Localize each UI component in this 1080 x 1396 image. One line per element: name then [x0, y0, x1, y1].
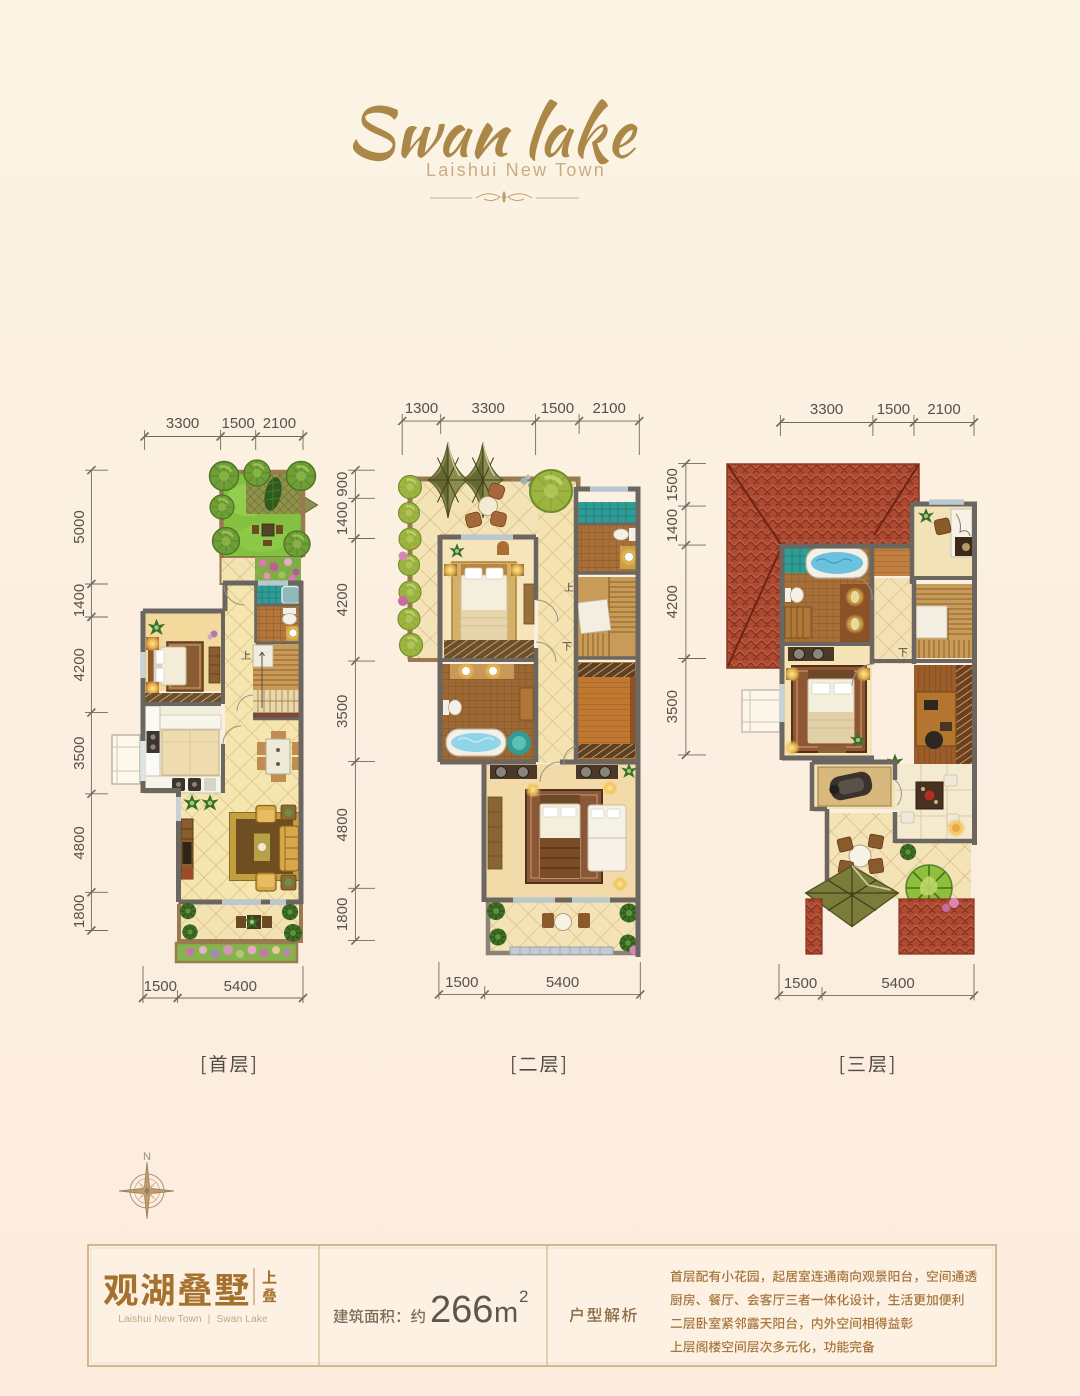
svg-text:4200: 4200	[71, 648, 88, 681]
svg-text:5400: 5400	[881, 975, 914, 992]
svg-text:1500: 1500	[541, 400, 574, 417]
svg-text:m: m	[494, 1297, 518, 1329]
svg-text:2: 2	[519, 1287, 528, 1306]
svg-text:4800: 4800	[334, 808, 351, 841]
svg-text:1500: 1500	[877, 401, 910, 418]
svg-text:1400: 1400	[71, 584, 88, 617]
svg-text:2100: 2100	[593, 400, 626, 417]
svg-text:5400: 5400	[546, 974, 579, 991]
svg-text:N: N	[143, 1151, 151, 1163]
svg-text:5000: 5000	[71, 510, 88, 543]
svg-text:1400: 1400	[664, 509, 681, 542]
svg-text:5400: 5400	[224, 978, 257, 995]
svg-text:2100: 2100	[263, 415, 296, 432]
svg-text:900: 900	[334, 472, 351, 497]
svg-text:1500: 1500	[144, 978, 177, 995]
svg-text:1800: 1800	[71, 895, 88, 928]
svg-text:2100: 2100	[927, 401, 960, 418]
svg-text:1500: 1500	[445, 974, 478, 991]
svg-text:1500: 1500	[784, 975, 817, 992]
svg-text:Laishui New Town | Swan Lake: Laishui New Town | Swan Lake	[118, 1314, 268, 1325]
svg-text:1300: 1300	[405, 400, 438, 417]
svg-text:3500: 3500	[71, 737, 88, 770]
svg-text:4200: 4200	[334, 583, 351, 616]
svg-text:1500: 1500	[664, 468, 681, 501]
svg-text:1800: 1800	[334, 898, 351, 931]
svg-text:4200: 4200	[664, 585, 681, 618]
svg-text:3300: 3300	[166, 415, 199, 432]
svg-text:3300: 3300	[472, 400, 505, 417]
svg-text:4800: 4800	[71, 826, 88, 859]
svg-text:3500: 3500	[664, 690, 681, 723]
svg-text:3500: 3500	[334, 695, 351, 728]
svg-text:3300: 3300	[810, 401, 843, 418]
svg-text:Laishui New Town: Laishui New Town	[426, 160, 606, 180]
svg-text:266: 266	[430, 1289, 493, 1331]
svg-text:1400: 1400	[334, 502, 351, 535]
svg-text:1500: 1500	[222, 415, 255, 432]
